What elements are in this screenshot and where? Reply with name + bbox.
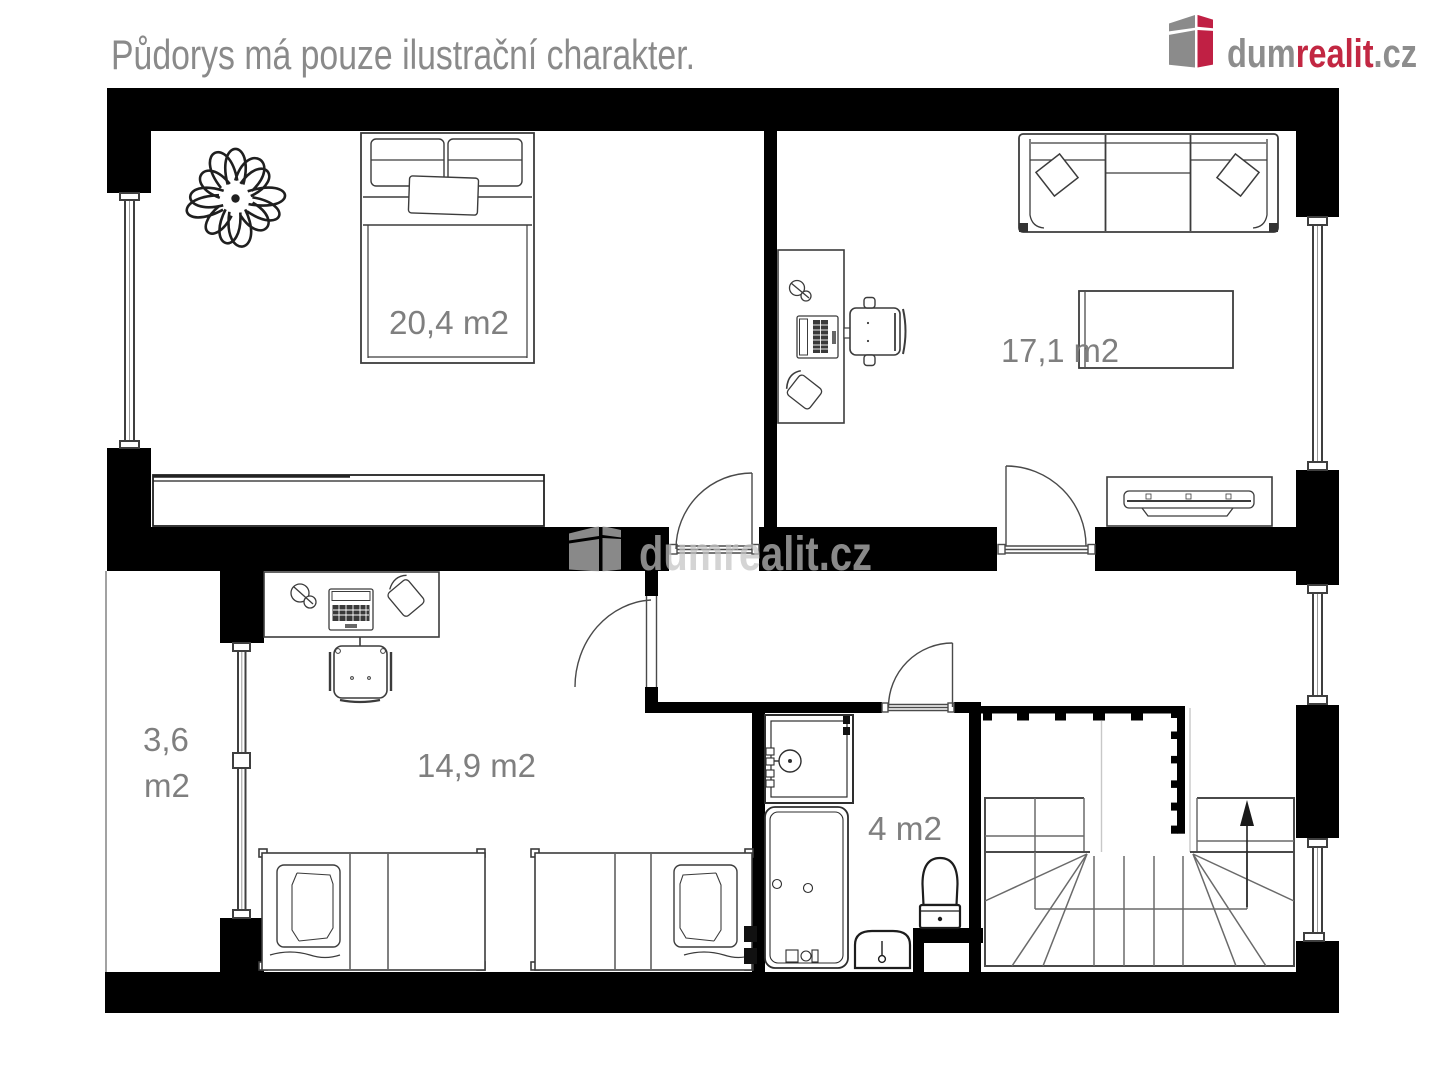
svg-text:14,9 m2: 14,9 m2 (417, 747, 536, 784)
svg-text:3,6: 3,6 (143, 721, 189, 758)
svg-text:m2: m2 (144, 767, 190, 804)
svg-text:4 m2: 4 m2 (868, 810, 942, 847)
svg-text:dumrealit.cz: dumrealit.cz (1227, 31, 1417, 76)
svg-text:dumrealit.cz: dumrealit.cz (639, 528, 872, 581)
svg-text:17,1 m2: 17,1 m2 (1001, 332, 1119, 369)
svg-text:Půdorys má pouze ilustrační ch: Půdorys má pouze ilustrační charakter. (111, 31, 695, 78)
svg-text:20,4 m2: 20,4 m2 (389, 304, 509, 341)
